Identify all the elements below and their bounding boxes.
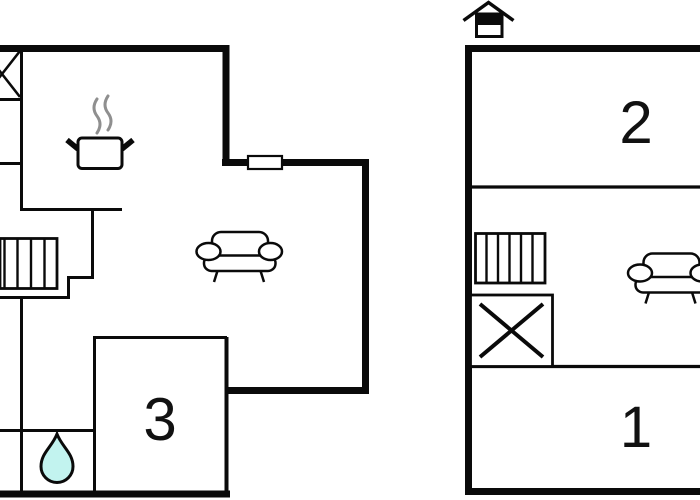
stairs-outline: [0, 239, 57, 289]
stairs-icon: [0, 239, 57, 289]
room3-label: 3: [143, 386, 176, 453]
attic-house-black-band: [475, 13, 504, 26]
floorplan-image: 3 2 1: [0, 0, 700, 500]
wardrobe-x-icon: [0, 51, 20, 97]
sofa-icon: [197, 232, 283, 282]
pot-body: [78, 138, 122, 169]
room1-label: 1: [620, 395, 652, 460]
steam-icon: [94, 96, 111, 133]
upper-floor-plan: 2 1: [464, 3, 700, 496]
ground-floor-plan: 3: [0, 45, 369, 494]
room2-label: 2: [619, 89, 652, 156]
window: [248, 156, 282, 169]
sofa-icon: [628, 254, 700, 304]
stairs-icon: [476, 234, 546, 284]
water-drop-icon: [41, 434, 73, 483]
attic-house-icon: [464, 3, 514, 37]
storage-x-icon: [471, 295, 553, 367]
stove-pot-icon: [67, 96, 133, 169]
floor-plan-canvas: 3 2 1: [0, 0, 700, 500]
